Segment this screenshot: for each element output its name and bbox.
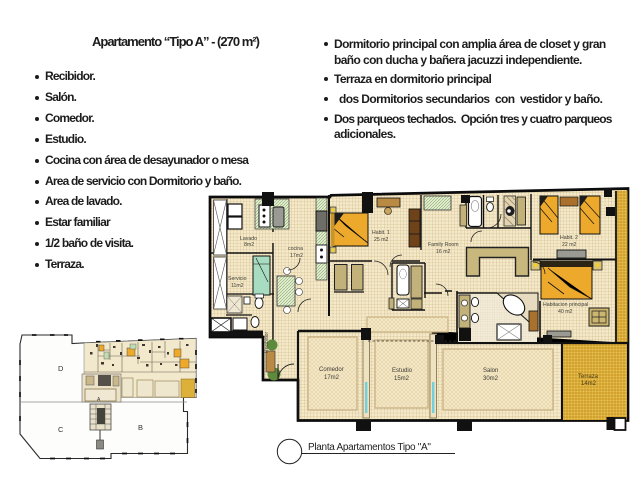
- svg-text:Habit. 2: Habit. 2: [560, 235, 578, 241]
- svg-text:30m2: 30m2: [483, 376, 499, 382]
- svg-text:Planta Apartamentos Tipo "A": Planta Apartamentos Tipo "A": [308, 442, 431, 453]
- svg-text:Servicio: Servicio: [228, 276, 247, 282]
- svg-text:22 m2: 22 m2: [562, 242, 577, 248]
- svg-text:D: D: [58, 364, 64, 373]
- svg-text:C: C: [58, 425, 64, 434]
- svg-text:8m2: 8m2: [244, 242, 254, 248]
- svg-text:14m2: 14m2: [581, 381, 597, 387]
- svg-text:Salon: Salon: [483, 368, 498, 374]
- svg-text:17m2: 17m2: [324, 375, 340, 381]
- svg-text:25 m2: 25 m2: [374, 237, 389, 243]
- svg-text:Family Room: Family Room: [428, 242, 459, 248]
- svg-text:15m2: 15m2: [394, 376, 410, 382]
- svg-text:16 m2: 16 m2: [436, 249, 451, 255]
- svg-text:cocina: cocina: [288, 246, 303, 252]
- svg-text:Estudio: Estudio: [392, 368, 413, 374]
- svg-text:Comedor: Comedor: [319, 367, 344, 373]
- svg-text:Habit. 1: Habit. 1: [372, 230, 390, 236]
- svg-text:11m2: 11m2: [231, 283, 244, 289]
- svg-text:Terraza: Terraza: [578, 374, 599, 380]
- svg-text:B: B: [138, 423, 143, 432]
- svg-text:40 m2: 40 m2: [558, 309, 573, 315]
- svg-text:Recibidor: Recibidor: [264, 332, 270, 353]
- svg-text:17m2: 17m2: [290, 253, 303, 259]
- svg-text:Habitacion principal: Habitacion principal: [543, 302, 588, 308]
